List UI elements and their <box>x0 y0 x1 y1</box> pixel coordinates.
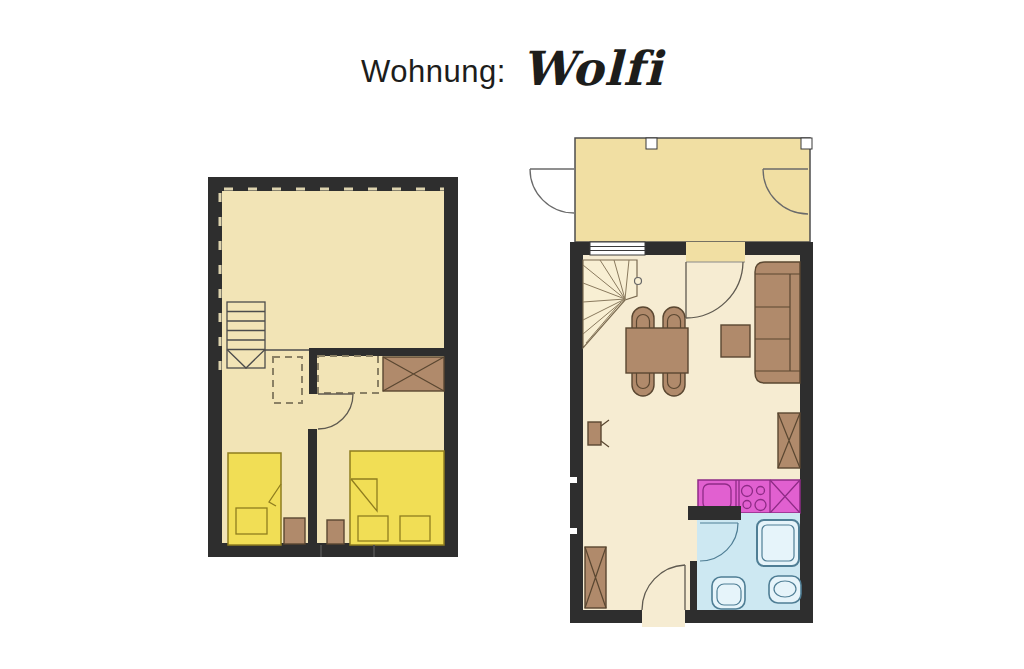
wardrobe <box>585 547 606 608</box>
window-frame <box>590 242 645 255</box>
bathroom-wall-stub <box>688 506 741 520</box>
floor-plan-canvas <box>0 0 1024 669</box>
single-bed <box>228 453 281 545</box>
bedroom-divider-wall <box>308 429 317 543</box>
bathroom-thin-wall <box>690 561 697 610</box>
door-threshold <box>686 242 745 262</box>
newel-post <box>635 278 642 285</box>
door-threshold <box>642 610 685 627</box>
side-table <box>721 325 750 357</box>
page: { "title": { "prefix": "Wohnung:", "apar… <box>0 0 1024 669</box>
pillow <box>236 508 267 534</box>
nightstand <box>327 520 344 544</box>
toilet <box>712 577 745 609</box>
window <box>590 242 645 255</box>
interior-wall-stub <box>309 348 317 394</box>
balcony-downspout <box>646 138 657 149</box>
tv-body <box>588 422 601 445</box>
balcony-downspout <box>801 138 812 149</box>
wall-joint <box>570 477 577 483</box>
bathroom <box>688 506 801 610</box>
double-bed <box>350 451 444 545</box>
chair <box>632 371 654 396</box>
interior-wall-horizontal <box>309 348 444 356</box>
upper-floor-plan <box>208 177 458 557</box>
chair <box>663 371 685 396</box>
pillow <box>400 516 430 541</box>
exterior-door-left <box>530 169 574 213</box>
wall-joint <box>570 528 577 534</box>
wardrobe <box>778 413 800 468</box>
wash-basin <box>769 576 801 603</box>
main-floor-plan <box>530 138 813 627</box>
sofa <box>755 262 800 383</box>
shower <box>757 520 799 566</box>
balcony <box>575 138 810 242</box>
pillow <box>358 516 388 541</box>
dining-table <box>626 328 688 373</box>
nightstand <box>284 518 305 544</box>
door-swing-arc <box>530 169 574 213</box>
wardrobe <box>383 357 444 391</box>
sofa-body <box>755 262 800 383</box>
